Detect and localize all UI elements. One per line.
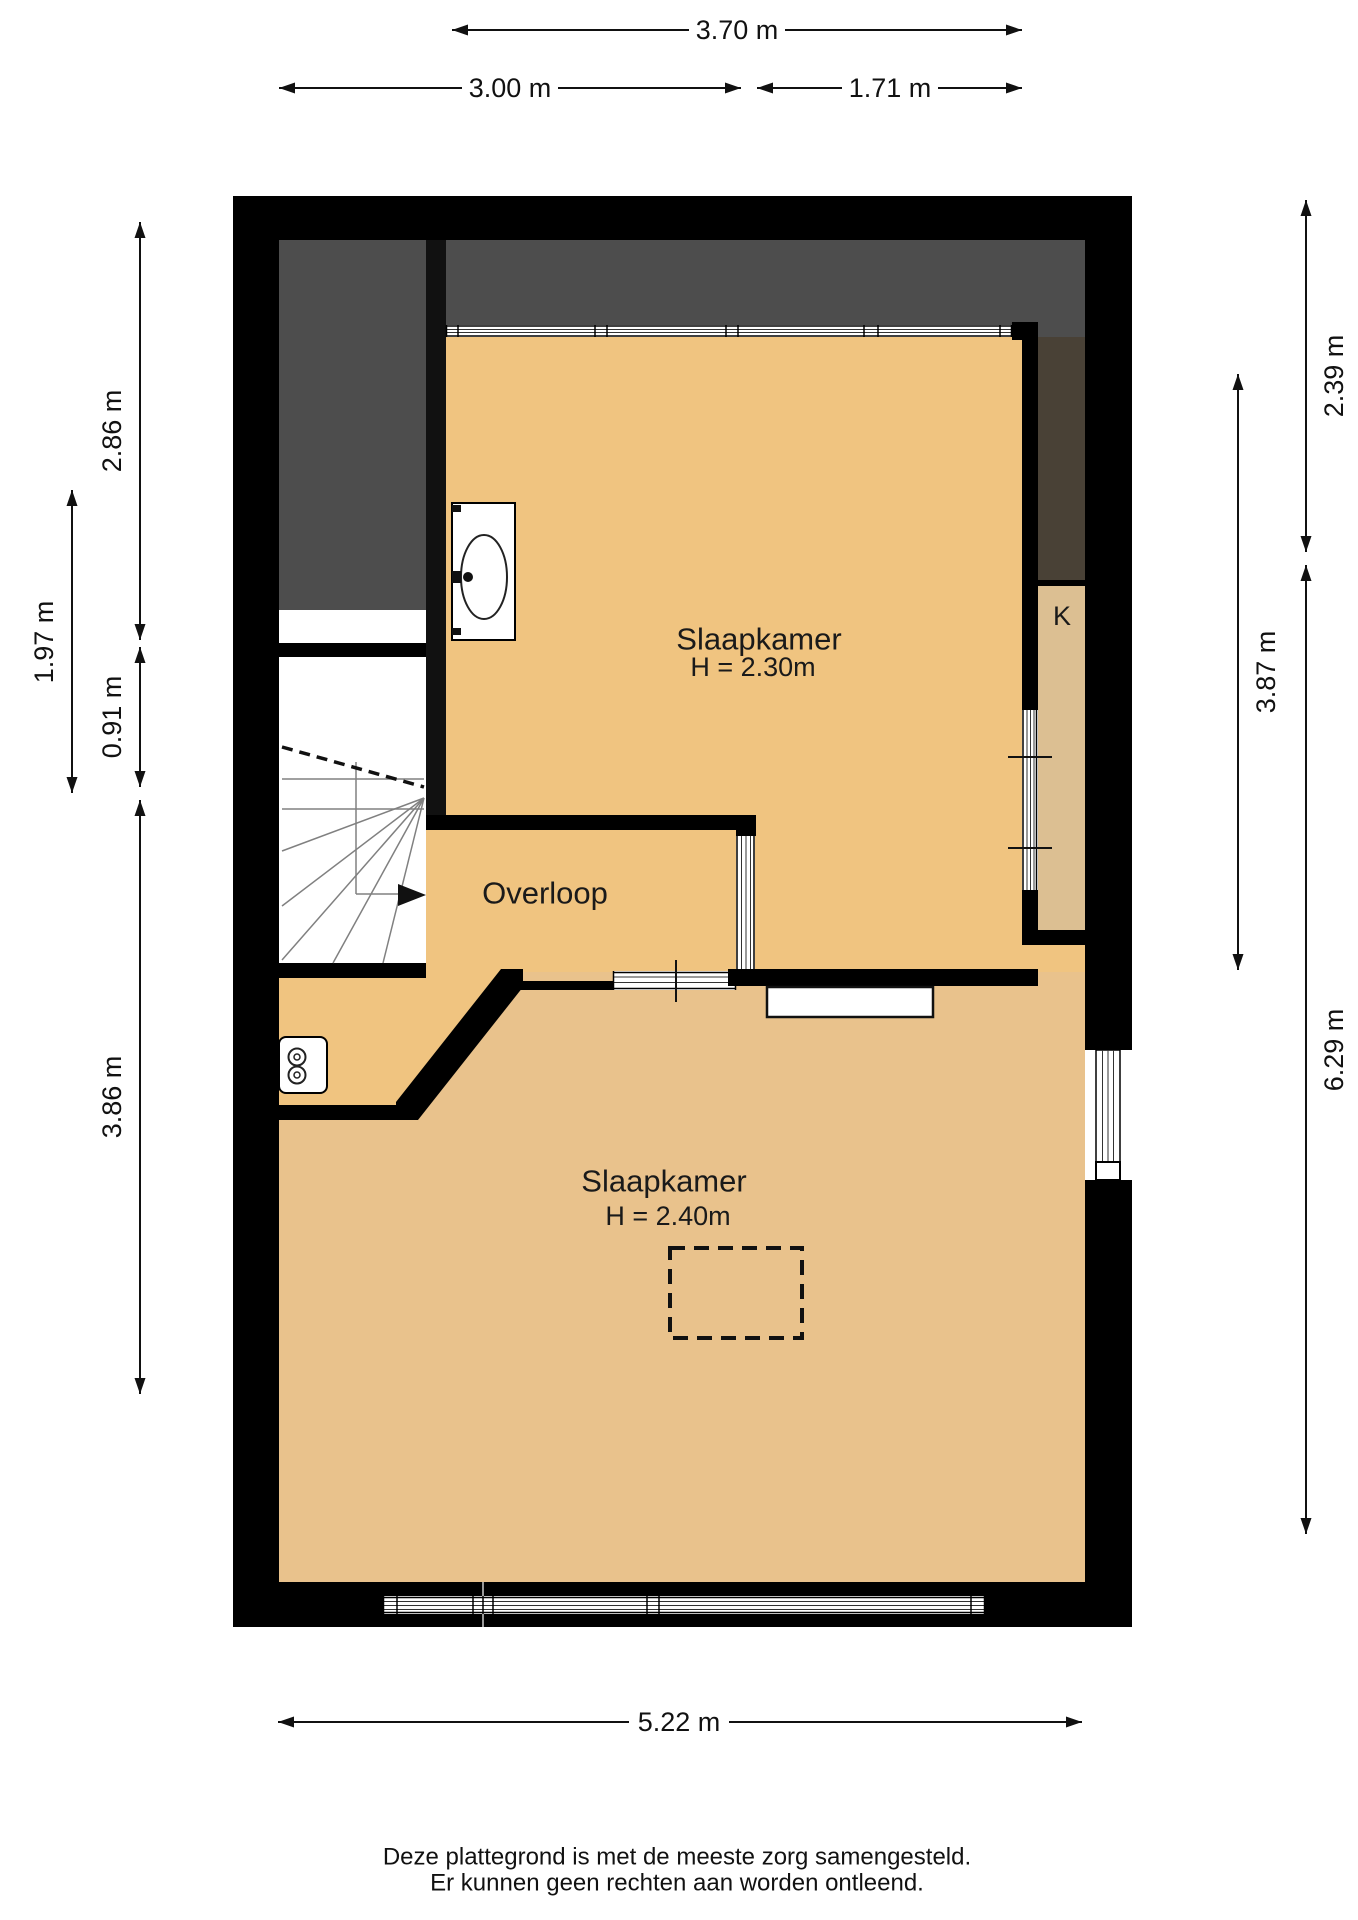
boiler-unit [279, 1037, 327, 1093]
storage-bottom-wall [279, 643, 426, 657]
room-label-bedroom-bottom: Slaapkamer [581, 1164, 746, 1199]
stairwell [279, 657, 426, 963]
dimension-label: 3.70 m [696, 15, 779, 45]
floorplan-page: Slaapkamer H = 2.30m Overloop K Slaapkam… [0, 0, 1358, 1920]
right-wall-door [1085, 1050, 1132, 1180]
closet-top-wall [1038, 580, 1085, 586]
bedroom-top-right-wall [1022, 890, 1038, 945]
top-window-band [446, 325, 1012, 337]
nook-bottom-wall [279, 1105, 400, 1120]
door-sill [1096, 1162, 1120, 1180]
sink-tap-icon [452, 571, 461, 583]
dimension-label: 5.22 m [638, 1707, 721, 1737]
dimension-label: 1.97 m [29, 601, 59, 684]
storage-gap [279, 610, 426, 643]
roof-zone-top [446, 240, 1085, 337]
sink-drain-icon [463, 572, 473, 582]
knee-storage-left [279, 240, 426, 610]
room-label-closet: K [1053, 601, 1071, 631]
radiator [767, 987, 933, 1017]
footer-disclaimer-line1: Deze plattegrond is met de meeste zorg s… [383, 1844, 971, 1871]
boiler-pipe-icon [289, 1067, 306, 1084]
upper-lower-dividing-wall [728, 969, 1038, 986]
window-glass [446, 325, 1012, 337]
sink-cabinet [452, 503, 515, 640]
boiler-pipe-icon [289, 1049, 306, 1066]
dimension-label: 3.00 m [469, 73, 552, 103]
dimension-label: 0.91 m [97, 676, 127, 759]
room-label-landing: Overloop [482, 876, 608, 911]
roof-zone-right [1038, 337, 1085, 582]
landing-door [736, 836, 755, 969]
landing-top-wall [426, 815, 738, 830]
bedroom-top-right-wall [1022, 325, 1038, 710]
wall-post [1012, 322, 1038, 340]
dimension-label: 2.86 m [97, 390, 127, 473]
stairwell-bottom-wall [279, 963, 426, 978]
cabinet-hinge-icon [452, 505, 461, 512]
floorplan-drawing: Slaapkamer H = 2.30m Overloop K Slaapkam… [0, 0, 1358, 1920]
cabinet-hinge-icon [452, 628, 461, 635]
window-glass [613, 971, 736, 990]
wall-post [736, 815, 756, 836]
dimension-label: 3.86 m [97, 1056, 127, 1139]
dimension-label: 2.39 m [1319, 335, 1349, 418]
room-height-bedroom-top: H = 2.30m [690, 652, 815, 682]
landing-bottom-wall [505, 981, 613, 990]
dimension-label: 3.87 m [1251, 631, 1281, 714]
stairwell-right-wall [426, 240, 446, 830]
room-height-bedroom-bottom: H = 2.40m [605, 1201, 730, 1231]
boiler-body [279, 1037, 327, 1093]
dimension-label: 1.71 m [849, 73, 932, 103]
dimension-label: 6.29 m [1319, 1009, 1349, 1092]
footer-disclaimer-line2: Er kunnen geen rechten aan worden ontlee… [430, 1870, 924, 1897]
